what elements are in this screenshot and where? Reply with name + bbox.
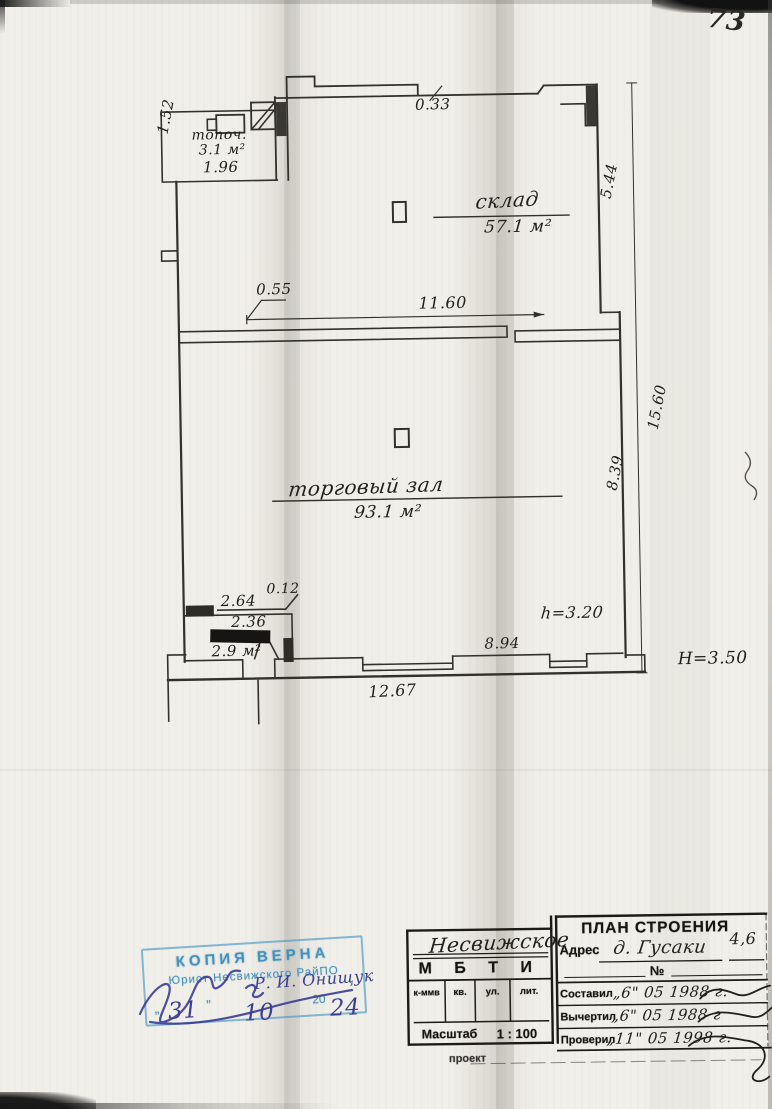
ink-signature-scrawl (0, 0, 772, 1109)
scanned-floor-plan-page: 73 (0, 0, 772, 1109)
stamp-month: 10 (243, 999, 275, 1027)
stamp-day: 31 (167, 997, 199, 1025)
stamp-year: 24 (329, 994, 361, 1022)
